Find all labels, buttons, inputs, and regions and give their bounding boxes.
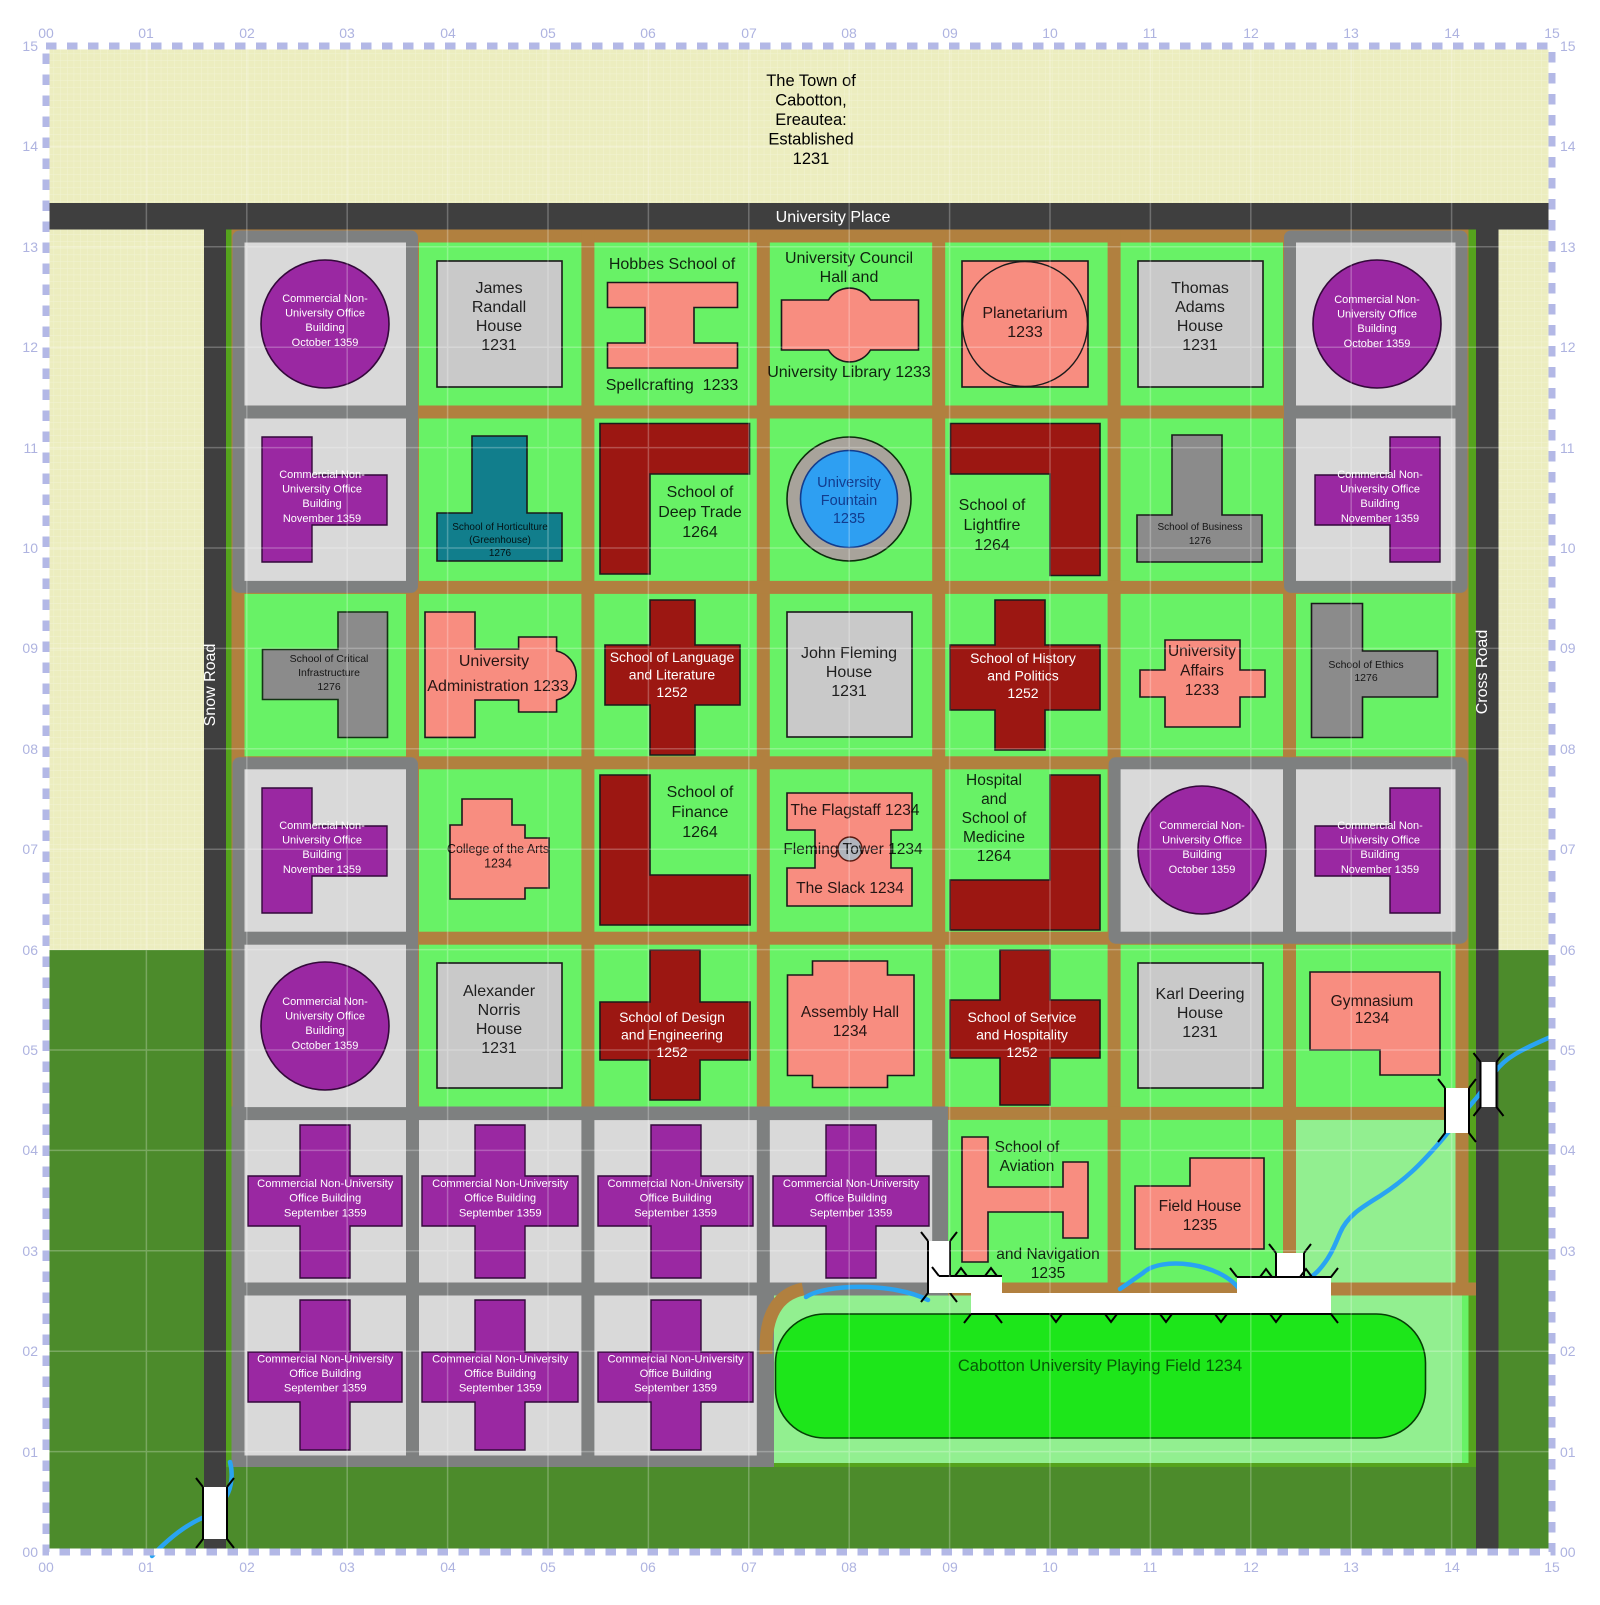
svg-text:02: 02 (1560, 1343, 1576, 1359)
svg-text:06: 06 (22, 942, 38, 958)
svg-text:06: 06 (1560, 942, 1576, 958)
svg-text:00: 00 (38, 25, 54, 41)
svg-text:08: 08 (22, 741, 38, 757)
svg-text:08: 08 (841, 1559, 857, 1575)
svg-text:05: 05 (1560, 1042, 1576, 1058)
svg-text:05: 05 (22, 1042, 38, 1058)
svg-text:12: 12 (1560, 339, 1576, 355)
svg-text:10: 10 (1042, 1559, 1058, 1575)
svg-text:13: 13 (22, 239, 38, 255)
svg-text:02: 02 (239, 25, 255, 41)
svg-text:12: 12 (1243, 1559, 1259, 1575)
svg-text:12: 12 (22, 339, 38, 355)
svg-text:14: 14 (22, 138, 38, 154)
svg-text:13: 13 (1343, 1559, 1359, 1575)
svg-text:07: 07 (22, 841, 38, 857)
svg-text:Cross Road: Cross Road (1474, 630, 1491, 714)
svg-text:14: 14 (1560, 138, 1576, 154)
svg-text:09: 09 (22, 640, 38, 656)
svg-text:The Flagstaff 1234: The Flagstaff 1234 (791, 802, 920, 819)
svg-text:Spellcrafting 1233: Spellcrafting 1233 (606, 377, 739, 394)
svg-text:06: 06 (640, 25, 656, 41)
svg-text:09: 09 (942, 1559, 958, 1575)
svg-text:03: 03 (1560, 1243, 1576, 1259)
svg-text:07: 07 (741, 1559, 757, 1575)
svg-text:04: 04 (440, 1559, 456, 1575)
svg-text:01: 01 (22, 1444, 38, 1460)
svg-text:00: 00 (22, 1544, 38, 1560)
svg-text:Hobbes School of: Hobbes School of (609, 256, 736, 273)
svg-text:03: 03 (339, 25, 355, 41)
svg-text:University: University (459, 653, 529, 670)
svg-text:08: 08 (1560, 741, 1576, 757)
svg-text:05: 05 (540, 1559, 556, 1575)
svg-text:00: 00 (1560, 1544, 1576, 1560)
svg-text:10: 10 (1560, 540, 1576, 556)
svg-text:14: 14 (1444, 25, 1460, 41)
svg-text:09: 09 (1560, 640, 1576, 656)
svg-text:Cabotton University Playing Fi: Cabotton University Playing Field 1234 (958, 1357, 1242, 1375)
svg-text:02: 02 (239, 1559, 255, 1575)
svg-text:01: 01 (1560, 1444, 1576, 1460)
svg-text:15: 15 (1544, 1559, 1560, 1575)
svg-text:Snow Road: Snow Road (202, 644, 219, 727)
svg-text:15: 15 (1544, 25, 1560, 41)
svg-text:05: 05 (540, 25, 556, 41)
svg-text:10: 10 (22, 540, 38, 556)
svg-text:11: 11 (23, 440, 38, 456)
svg-text:12: 12 (1243, 25, 1259, 41)
svg-text:10: 10 (1042, 25, 1058, 41)
svg-text:04: 04 (1560, 1142, 1576, 1158)
svg-text:04: 04 (440, 25, 456, 41)
svg-text:11: 11 (1143, 25, 1158, 41)
svg-text:08: 08 (841, 25, 857, 41)
svg-text:13: 13 (1560, 239, 1576, 255)
svg-text:11: 11 (1143, 1559, 1158, 1575)
svg-text:01: 01 (138, 25, 154, 41)
svg-text:06: 06 (640, 1559, 656, 1575)
svg-text:13: 13 (1343, 25, 1359, 41)
svg-text:15: 15 (1560, 38, 1576, 54)
svg-text:15: 15 (22, 38, 38, 54)
svg-text:03: 03 (339, 1559, 355, 1575)
svg-text:14: 14 (1444, 1559, 1460, 1575)
svg-text:07: 07 (1560, 841, 1576, 857)
svg-text:11: 11 (1560, 440, 1575, 456)
svg-text:The Slack 1234: The Slack 1234 (796, 880, 904, 897)
svg-text:07: 07 (741, 25, 757, 41)
svg-text:01: 01 (138, 1559, 154, 1575)
svg-text:00: 00 (38, 1559, 54, 1575)
svg-text:03: 03 (22, 1243, 38, 1259)
svg-text:04: 04 (22, 1142, 38, 1158)
svg-text:02: 02 (22, 1343, 38, 1359)
svg-text:University Place: University Place (776, 209, 891, 226)
svg-text:09: 09 (942, 25, 958, 41)
